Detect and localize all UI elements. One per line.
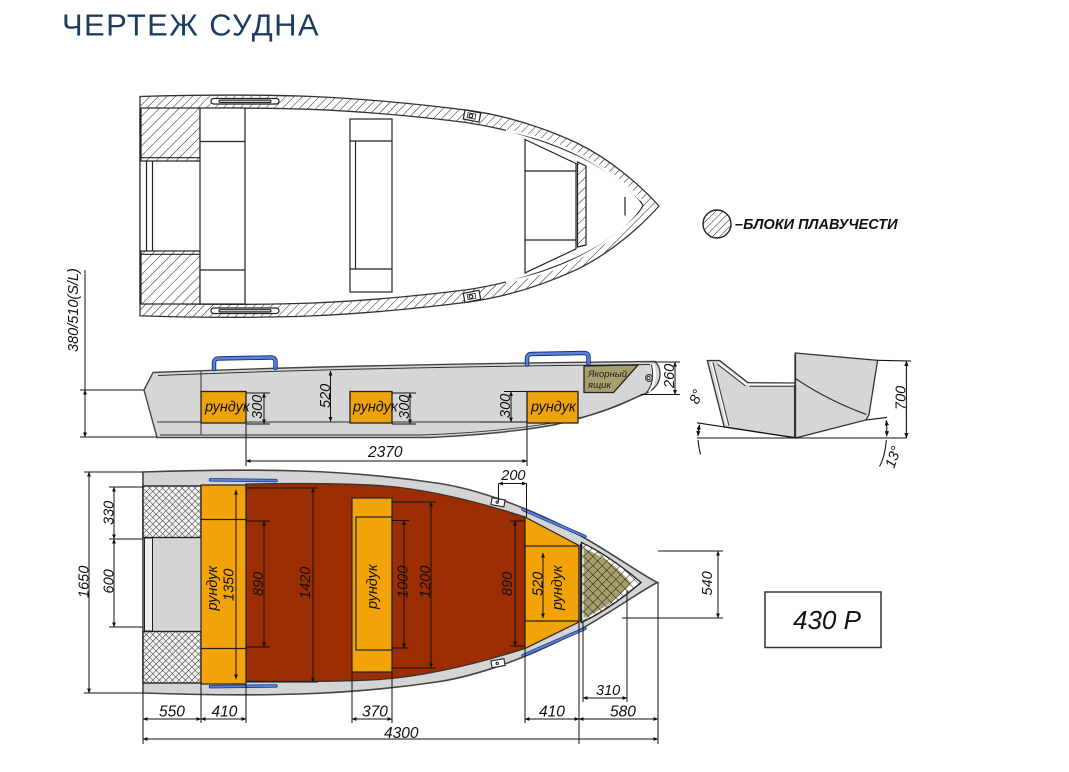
svg-text:1200: 1200: [418, 566, 434, 598]
svg-text:200: 200: [500, 468, 525, 484]
svg-text:1650: 1650: [77, 566, 93, 598]
svg-text:370: 370: [362, 704, 388, 721]
svg-text:300: 300: [250, 395, 266, 419]
svg-text:1420: 1420: [298, 567, 314, 599]
svg-text:8°: 8°: [687, 387, 707, 406]
svg-text:890: 890: [500, 572, 516, 596]
svg-text:рундук: рундук: [530, 400, 577, 416]
svg-text:430 Р: 430 Р: [793, 605, 862, 635]
svg-text:1350: 1350: [222, 569, 238, 601]
svg-text:4300: 4300: [384, 725, 419, 742]
svg-text:580: 580: [610, 704, 636, 721]
svg-text:330: 330: [102, 501, 118, 525]
svg-text:260: 260: [662, 364, 678, 389]
svg-text:рундук: рундук: [550, 564, 566, 611]
svg-text:300: 300: [498, 394, 514, 418]
svg-text:рундук: рундук: [205, 565, 221, 612]
svg-text:рундук: рундук: [365, 563, 381, 610]
svg-text:410: 410: [212, 704, 238, 721]
svg-text:700: 700: [894, 386, 910, 410]
svg-text:2370: 2370: [367, 444, 403, 461]
svg-text:Якорный: Якорный: [587, 369, 628, 380]
svg-text:550: 550: [159, 704, 185, 721]
svg-text:13°: 13°: [883, 444, 906, 470]
svg-text:520: 520: [531, 572, 547, 596]
svg-text:410: 410: [539, 704, 565, 721]
svg-text:рундук: рундук: [352, 400, 399, 416]
svg-text:1000: 1000: [396, 566, 412, 598]
svg-text:600: 600: [102, 569, 118, 593]
svg-text:520: 520: [318, 384, 334, 408]
svg-text:300: 300: [397, 395, 413, 419]
svg-text:–БЛОКИ ПЛАВУЧЕСТИ: –БЛОКИ ПЛАВУЧЕСТИ: [735, 217, 898, 233]
svg-text:540: 540: [700, 571, 716, 595]
svg-text:рундук: рундук: [204, 400, 251, 416]
svg-text:ящик: ящик: [587, 380, 611, 391]
svg-text:890: 890: [251, 572, 267, 596]
svg-text:380/510(S/L): 380/510(S/L): [66, 268, 82, 352]
svg-text:ЧЕРТЕЖ СУДНА: ЧЕРТЕЖ СУДНА: [62, 8, 320, 43]
svg-text:310: 310: [596, 683, 620, 699]
